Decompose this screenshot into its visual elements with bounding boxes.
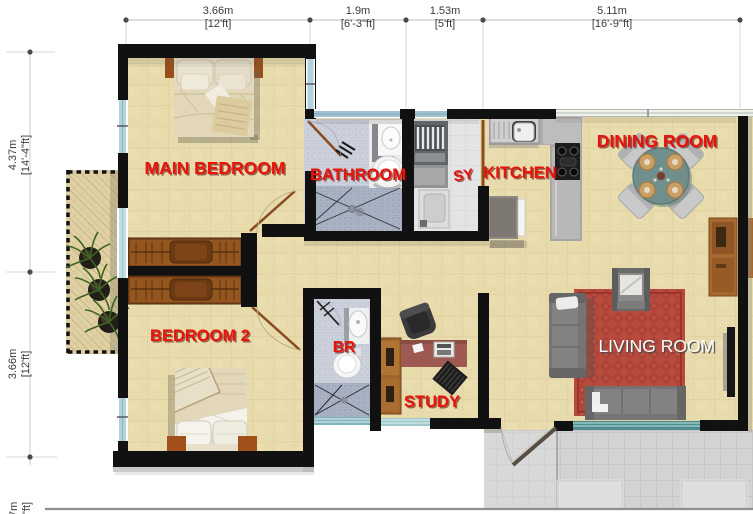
svg-text:BR: BR [333,339,355,356]
svg-text:5.11m: 5.11m [597,5,627,17]
svg-text:LIVING ROOM: LIVING ROOM [598,336,715,356]
svg-text:1.53m: 1.53m [430,5,461,17]
svg-text:KITCHEN: KITCHEN [483,164,556,182]
svg-text:MAIN BEDROOM: MAIN BEDROOM [145,158,286,178]
svg-text:3.66m: 3.66m [203,5,234,17]
svg-text:1.07m: 1.07m [8,502,20,514]
svg-text:1.9m: 1.9m [346,5,370,17]
svg-text:BATHROOM: BATHROOM [310,166,406,184]
svg-text:STUDY: STUDY [404,393,460,411]
svg-text:3.66m: 3.66m [7,349,19,380]
svg-text:[6'-3"ft]: [6'-3"ft] [341,18,375,30]
svg-text:SY: SY [452,166,474,186]
svg-text:4.37m: 4.37m [7,140,19,171]
svg-text:[3'-0"ft]: [3'-0"ft] [21,502,33,514]
svg-text:[14'-4"ft]: [14'-4"ft] [20,135,32,175]
svg-text:[5'ft]: [5'ft] [435,18,455,30]
svg-text:BEDROOM 2: BEDROOM 2 [150,327,250,345]
svg-text:[16'-9"ft]: [16'-9"ft] [592,18,632,30]
svg-text:DINING ROOM: DINING ROOM [597,131,718,151]
svg-text:[12'ft]: [12'ft] [20,351,32,378]
svg-text:[12'ft]: [12'ft] [205,18,232,30]
